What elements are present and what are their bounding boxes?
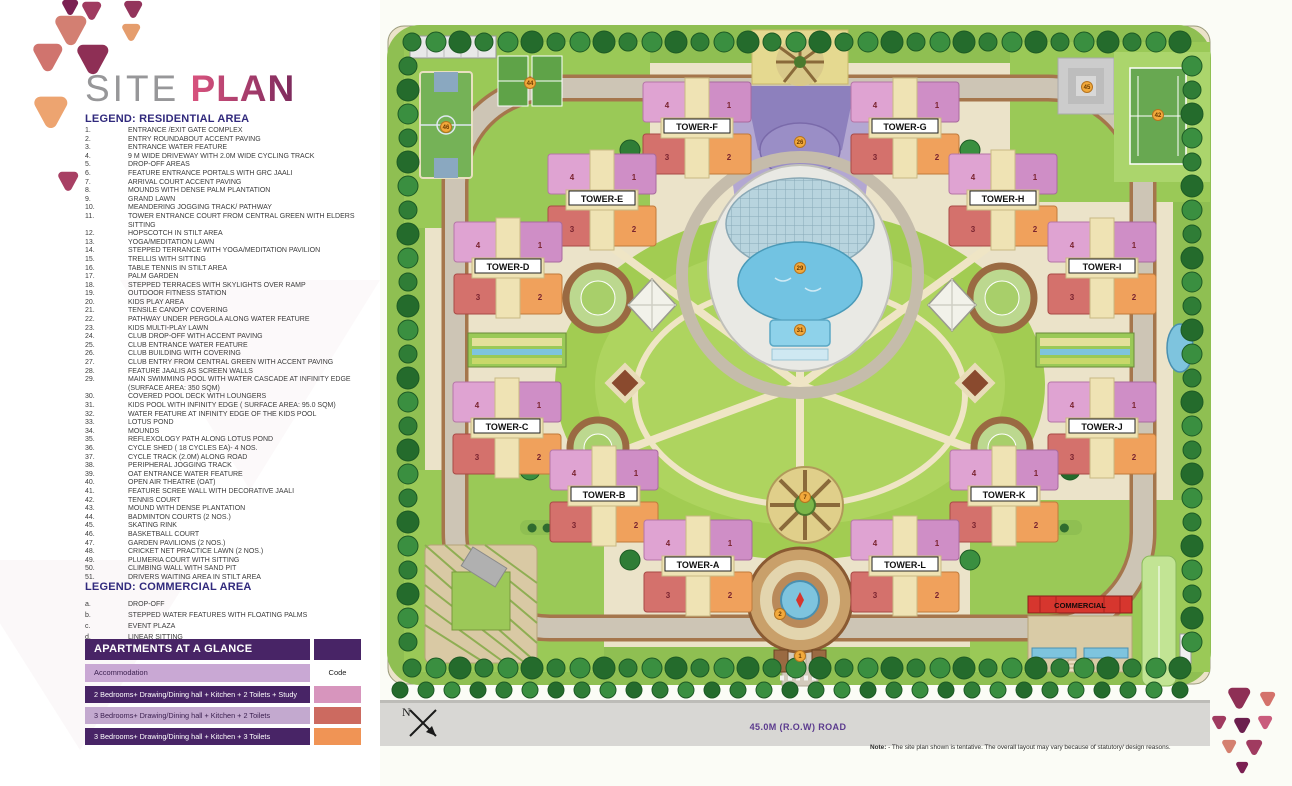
svg-text:1: 1 bbox=[728, 539, 733, 548]
legend-item: 50. CLIMBING WALL WITH SAND PIT bbox=[85, 565, 379, 574]
svg-text:4: 4 bbox=[873, 101, 878, 110]
plumeria-garden-court bbox=[425, 545, 537, 663]
logo-triangle bbox=[1263, 695, 1272, 704]
svg-text:2: 2 bbox=[632, 225, 637, 234]
legend-item: 25. CLUB ENTRANCE WATER FEATURE bbox=[85, 342, 379, 351]
legend-item: 17. PALM GARDEN bbox=[85, 273, 379, 282]
svg-text:3: 3 bbox=[476, 293, 481, 302]
site-plan-page: SITE PLAN LEGEND: RESIDENTIAL AREA 1. EN… bbox=[0, 0, 1292, 786]
north-label: N bbox=[402, 705, 411, 719]
svg-text:26: 26 bbox=[797, 140, 804, 146]
apartment-code-swatch bbox=[314, 686, 361, 703]
svg-text:4: 4 bbox=[665, 101, 670, 110]
tower-label: TOWER-G bbox=[883, 122, 926, 132]
legend-item: 14. STEPPED TERRANCE WITH YOGA/MEDITATIO… bbox=[85, 247, 379, 256]
svg-text:4: 4 bbox=[570, 173, 575, 182]
legend-item: 8. MOUNDS WITH DENSE PALM PLANTATION bbox=[85, 187, 379, 196]
svg-text:1: 1 bbox=[634, 469, 639, 478]
legend-item: 19. OUTDOOR FITNESS STATION bbox=[85, 290, 379, 299]
page-title: SITE PLAN bbox=[85, 68, 295, 110]
svg-text:1: 1 bbox=[935, 539, 940, 548]
tower-label: TOWER-A bbox=[677, 560, 720, 570]
legend-item: 21. TENSILE CANOPY COVERING bbox=[85, 307, 379, 316]
svg-text:45: 45 bbox=[1084, 85, 1091, 91]
brand-logo-small bbox=[1198, 686, 1290, 780]
svg-text:1: 1 bbox=[632, 173, 637, 182]
legend-item: 41. FEATURE SCREE WALL WITH DECORATIVE J… bbox=[85, 488, 379, 497]
legend-marker: 42 bbox=[1153, 110, 1164, 121]
footnote-text: - The site plan shown is tentative. The … bbox=[886, 744, 1170, 751]
svg-text:4: 4 bbox=[475, 401, 480, 410]
legend-marker: 2 bbox=[775, 609, 786, 620]
footnote-label: Note: bbox=[870, 744, 886, 751]
svg-text:2: 2 bbox=[634, 521, 639, 530]
oat-sunburst bbox=[767, 467, 843, 543]
legend-item: 6. FEATURE ENTRANCE PORTALS WITH GRC JAA… bbox=[85, 170, 379, 179]
svg-text:2: 2 bbox=[1033, 225, 1038, 234]
legend-item: 36. CYCLE SHED ( 18 CYCLES EA)- 4 NOS. bbox=[85, 445, 379, 454]
tower-label: TOWER-C bbox=[486, 422, 529, 432]
svg-text:4: 4 bbox=[666, 539, 671, 548]
logo-triangle bbox=[41, 103, 61, 122]
legend-residential-list: 1. ENTRANCE /EXIT GATE COMPLEX 2. ENTRY … bbox=[85, 127, 379, 582]
legend-item: 10. MEANDERING JOGGING TRACK/ PATHWAY bbox=[85, 204, 379, 213]
legend-residential-heading: LEGEND: RESIDENTIAL AREA bbox=[85, 113, 249, 125]
svg-text:1: 1 bbox=[1034, 469, 1039, 478]
legend-marker: 44 bbox=[525, 78, 536, 89]
svg-text:4: 4 bbox=[572, 469, 577, 478]
svg-text:4: 4 bbox=[971, 173, 976, 182]
svg-text:1: 1 bbox=[1033, 173, 1038, 182]
legend-marker: 29 bbox=[795, 263, 806, 274]
legend-item: a. DROP-OFF bbox=[85, 599, 379, 610]
svg-text:4: 4 bbox=[1070, 241, 1075, 250]
svg-text:4: 4 bbox=[873, 539, 878, 548]
left-panel: SITE PLAN LEGEND: RESIDENTIAL AREA 1. EN… bbox=[0, 0, 382, 786]
apartment-type-label: 3 Bedrooms+ Drawing/Dining hall + Kitche… bbox=[85, 728, 310, 745]
legend-item: 20. KIDS PLAY AREA bbox=[85, 299, 379, 308]
code-column-header: Code bbox=[314, 664, 361, 682]
legend-item: 22. PATHWAY UNDER PERGOLA ALONG WATER FE… bbox=[85, 316, 379, 325]
legend-item: 31. KIDS POOL WITH INFINITY EDGE ( SURFA… bbox=[85, 402, 379, 411]
logo-triangle bbox=[65, 3, 75, 12]
legend-item: 29. MAIN SWIMMING POOL WITH WATER CASCAD… bbox=[85, 376, 379, 393]
svg-text:44: 44 bbox=[527, 81, 534, 87]
accommodation-column-header: Accommodation bbox=[85, 664, 310, 682]
svg-text:3: 3 bbox=[570, 225, 575, 234]
tower-label: TOWER-H bbox=[982, 194, 1025, 204]
svg-text:4: 4 bbox=[972, 469, 977, 478]
tower-label: TOWER-D bbox=[487, 262, 530, 272]
logo-triangle bbox=[128, 4, 139, 14]
svg-text:31: 31 bbox=[797, 328, 804, 334]
legend-item: 42. TENNIS COURT bbox=[85, 497, 379, 506]
svg-text:2: 2 bbox=[935, 153, 940, 162]
legend-item: 35. REFLEXOLOGY PATH ALONG LOTUS POND bbox=[85, 436, 379, 445]
legend-marker: 31 bbox=[795, 325, 806, 336]
site-plan-drawing: 45.0M (R.O.W) ROAD N bbox=[380, 0, 1292, 786]
apartment-type-label: 3 Bedrooms+ Drawing/Dining hall + Kitche… bbox=[85, 707, 310, 724]
tower-label: TOWER-J bbox=[1081, 422, 1122, 432]
svg-text:2: 2 bbox=[537, 453, 542, 462]
svg-text:4: 4 bbox=[1070, 401, 1075, 410]
apartments-code-header-block bbox=[314, 639, 361, 660]
legend-item: 46. BASKETBALL COURT bbox=[85, 531, 379, 540]
svg-text:1: 1 bbox=[1132, 241, 1137, 250]
legend-item: 28. FEATURE JAALIS AS SCREEN WALLS bbox=[85, 368, 379, 377]
water-cascade bbox=[772, 349, 828, 360]
svg-text:2: 2 bbox=[727, 153, 732, 162]
row-road: 45.0M (R.O.W) ROAD bbox=[380, 700, 1210, 746]
apartment-code-swatch bbox=[314, 707, 361, 724]
svg-text:1: 1 bbox=[727, 101, 732, 110]
svg-text:4: 4 bbox=[476, 241, 481, 250]
logo-triangle bbox=[1237, 721, 1247, 730]
logo-triangle bbox=[39, 49, 57, 66]
apartment-type-label: 2 Bedrooms+ Drawing/Dining hall + Kitche… bbox=[85, 686, 310, 703]
apartments-table-header: APARTMENTS AT A GLANCE bbox=[85, 639, 361, 660]
legend-item: 18. STEPPED TERRACES WITH SKYLIGHTS OVER… bbox=[85, 282, 379, 291]
legend-item: 3. ENTRANCE WATER FEATURE bbox=[85, 144, 379, 153]
tower-label: TOWER-E bbox=[581, 194, 623, 204]
legend-item: 37. CYCLE TRACK (2.0M) ALONG ROAD bbox=[85, 454, 379, 463]
svg-text:3: 3 bbox=[666, 591, 671, 600]
legend-item: 13. YOGA/MEDITATION LAWN bbox=[85, 239, 379, 248]
apartments-table: APARTMENTS AT A GLANCE Accommodation Cod… bbox=[85, 639, 361, 749]
logo-triangle bbox=[62, 176, 74, 187]
svg-text:1: 1 bbox=[538, 241, 543, 250]
legend-item: 33. LOTUS POND bbox=[85, 419, 379, 428]
apartments-rows: 2 Bedrooms+ Drawing/Dining hall + Kitche… bbox=[85, 686, 361, 745]
svg-text:2: 2 bbox=[1034, 521, 1039, 530]
legend-item: 39. OAT ENTRANCE WATER FEATURE bbox=[85, 471, 379, 480]
legend-item: 11. TOWER ENTRANCE COURT FROM CENTRAL GR… bbox=[85, 213, 379, 230]
stepped-water-feature bbox=[1084, 648, 1128, 658]
site-plan-map: All Flats are corner flats & green facin… bbox=[380, 0, 1292, 786]
svg-text:3: 3 bbox=[1070, 293, 1075, 302]
legend-item: 47. GARDEN PAVILIONS (2 NOS.) bbox=[85, 540, 379, 549]
svg-text:1: 1 bbox=[935, 101, 940, 110]
svg-text:3: 3 bbox=[1070, 453, 1075, 462]
legend-item: 26. CLUB BUILDING WITH COVERING bbox=[85, 350, 379, 359]
main-swimming-pool bbox=[738, 242, 862, 322]
legend-item: 32. WATER FEATURE AT INFINITY EDGE OF TH… bbox=[85, 411, 379, 420]
logo-triangle bbox=[61, 22, 80, 40]
apartment-row: 3 Bedrooms+ Drawing/Dining hall + Kitche… bbox=[85, 728, 361, 745]
tower-label: TOWER-B bbox=[583, 490, 626, 500]
entry-roundabout bbox=[748, 548, 852, 652]
logo-triangle bbox=[126, 27, 137, 37]
apartments-table-subheader: Accommodation Code bbox=[85, 664, 361, 682]
title-bold: PLAN bbox=[191, 68, 296, 109]
legend-item: 1. ENTRANCE /EXIT GATE COMPLEX bbox=[85, 127, 379, 136]
legend-item: 45. SKATING RINK bbox=[85, 522, 379, 531]
apartment-row: 3 Bedrooms+ Drawing/Dining hall + Kitche… bbox=[85, 707, 361, 724]
legend-item: c. EVENT PLAZA bbox=[85, 621, 379, 632]
legend-item: 16. TABLE TENNIS IN STILT AREA bbox=[85, 265, 379, 274]
logo-triangle bbox=[83, 51, 102, 69]
svg-text:3: 3 bbox=[873, 153, 878, 162]
legend-marker: 26 bbox=[795, 137, 806, 148]
svg-text:3: 3 bbox=[873, 591, 878, 600]
legend-item: 4. 9 M WIDE DRIVEWAY WITH 2.0M WIDE CYCL… bbox=[85, 153, 379, 162]
svg-text:3: 3 bbox=[475, 453, 480, 462]
logo-triangle bbox=[1232, 692, 1246, 705]
svg-text:2: 2 bbox=[1132, 293, 1137, 302]
logo-triangle bbox=[1225, 743, 1234, 751]
svg-text:2: 2 bbox=[728, 591, 733, 600]
commercial-label: COMMERCIAL bbox=[1054, 601, 1106, 610]
svg-text:3: 3 bbox=[572, 521, 577, 530]
legend-item: 24. CLUB DROP-OFF WITH ACCENT PAVING bbox=[85, 333, 379, 342]
svg-text:29: 29 bbox=[797, 266, 804, 272]
commercial-building: COMMERCIAL bbox=[1028, 596, 1132, 613]
tower-label: TOWER-K bbox=[983, 490, 1026, 500]
svg-text:3: 3 bbox=[972, 521, 977, 530]
svg-text:2: 2 bbox=[935, 591, 940, 600]
legend-item: 38. PERIPHERAL JOGGING TRACK bbox=[85, 462, 379, 471]
legend-marker: 45 bbox=[1082, 82, 1093, 93]
svg-text:42: 42 bbox=[1155, 113, 1162, 119]
title-light: SITE bbox=[85, 68, 179, 109]
svg-text:2: 2 bbox=[1132, 453, 1137, 462]
legend-item: 30. COVERED POOL DECK WITH LOUNGERS bbox=[85, 393, 379, 402]
legend-item: 43. MOUND WITH DENSE PLANTATION bbox=[85, 505, 379, 514]
legend-item: 9. GRAND LAWN bbox=[85, 196, 379, 205]
legend-item: b. STEPPED WATER FEATURES WITH FLOATING … bbox=[85, 610, 379, 621]
apartments-table-title: APARTMENTS AT A GLANCE bbox=[85, 639, 310, 660]
legend-item: 2. ENTRY ROUNDABOUT ACCENT PAVING bbox=[85, 136, 379, 145]
map-footnote: Note: - The site plan shown is tentative… bbox=[870, 744, 1200, 751]
legend-item: 5. DROP-OFF AREAS bbox=[85, 161, 379, 170]
stepped-water-feature bbox=[1032, 648, 1076, 658]
legend-item: 23. KIDS MULTI-PLAY LAWN bbox=[85, 325, 379, 334]
legend-item: 15. TRELLIS WITH SITTING bbox=[85, 256, 379, 265]
logo-triangle bbox=[1215, 719, 1224, 727]
legend-item: 34. MOUNDS bbox=[85, 428, 379, 437]
legend-marker: 1 bbox=[795, 651, 806, 662]
svg-text:1: 1 bbox=[1132, 401, 1137, 410]
legend-marker: 7 bbox=[800, 492, 811, 503]
tower-label: TOWER-L bbox=[884, 560, 926, 570]
legend-commercial-list: a. DROP-OFF b. STEPPED WATER FEATURES WI… bbox=[85, 599, 379, 643]
legend-item: 49. PLUMERIA COURT WITH SITTING bbox=[85, 557, 379, 566]
legend-item: 7. ARRIVAL COURT ACCENT PAVING bbox=[85, 179, 379, 188]
logo-triangle bbox=[1249, 743, 1259, 752]
logo-triangle bbox=[1238, 764, 1245, 771]
svg-text:3: 3 bbox=[665, 153, 670, 162]
svg-text:46: 46 bbox=[443, 125, 450, 131]
apartment-row: 2 Bedrooms+ Drawing/Dining hall + Kitche… bbox=[85, 686, 361, 703]
logo-triangle bbox=[86, 5, 98, 16]
legend-commercial-heading: LEGEND: COMMERCIAL AREA bbox=[85, 581, 252, 593]
tower-label: TOWER-I bbox=[1083, 262, 1122, 272]
legend-item: 12. HOPSCOTCH IN STILT AREA bbox=[85, 230, 379, 239]
svg-text:3: 3 bbox=[971, 225, 976, 234]
svg-text:2: 2 bbox=[538, 293, 543, 302]
legend-item: 40. OPEN AIR THEATRE (OAT) bbox=[85, 479, 379, 488]
legend-item: 27. CLUB ENTRY FROM CENTRAL GREEN WITH A… bbox=[85, 359, 379, 368]
legend-item: 48. CRICKET NET PRACTICE LAWN (2 NOS.) bbox=[85, 548, 379, 557]
legend-marker: 46 bbox=[441, 122, 452, 133]
svg-text:1: 1 bbox=[537, 401, 542, 410]
apartment-code-swatch bbox=[314, 728, 361, 745]
legend-item: 44. BADMINTON COURTS (2 NOS.) bbox=[85, 514, 379, 523]
road-label: 45.0M (R.O.W) ROAD bbox=[750, 722, 847, 732]
tower-label: TOWER-F bbox=[676, 122, 718, 132]
logo-triangle bbox=[1261, 719, 1270, 727]
